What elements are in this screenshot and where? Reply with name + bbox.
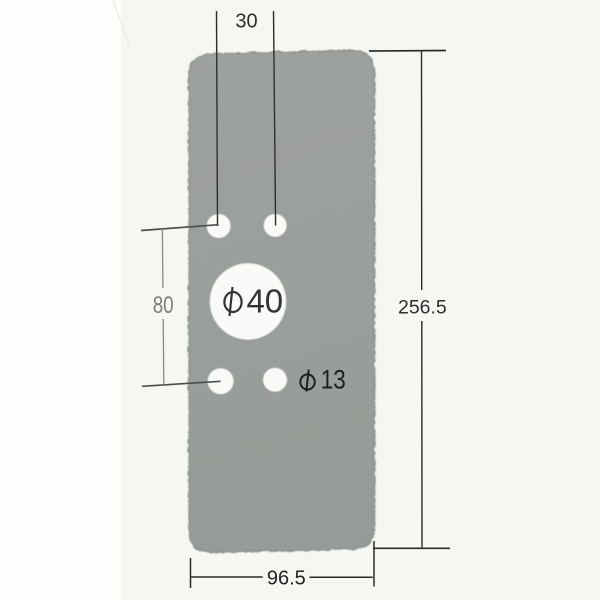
svg-text:96.5: 96.5 [267,567,306,589]
svg-text:13: 13 [321,365,346,395]
svg-text:30: 30 [235,10,257,32]
svg-text:256.5: 256.5 [398,297,447,319]
svg-text:40: 40 [246,283,283,320]
svg-text:80: 80 [153,292,174,319]
